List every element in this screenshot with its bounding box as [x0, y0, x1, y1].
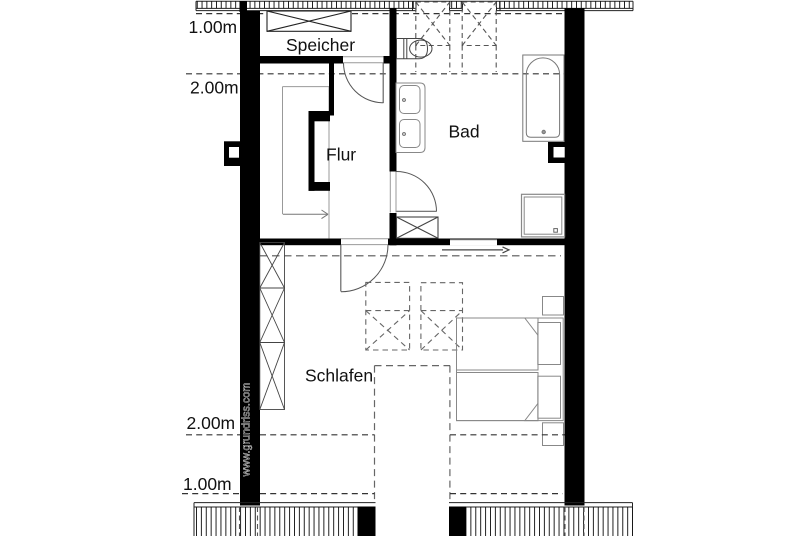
svg-text:Schlafen: Schlafen: [305, 366, 373, 386]
svg-text:Bad: Bad: [449, 122, 480, 142]
svg-text:1.00m: 1.00m: [189, 17, 238, 37]
svg-text:Speicher: Speicher: [286, 35, 355, 55]
svg-text:www.grundriss.com: www.grundriss.com: [241, 383, 253, 478]
svg-text:Flur: Flur: [326, 145, 356, 165]
svg-text:1.00m: 1.00m: [183, 474, 232, 494]
svg-text:2.00m: 2.00m: [187, 413, 236, 433]
svg-text:2.00m: 2.00m: [190, 78, 239, 98]
